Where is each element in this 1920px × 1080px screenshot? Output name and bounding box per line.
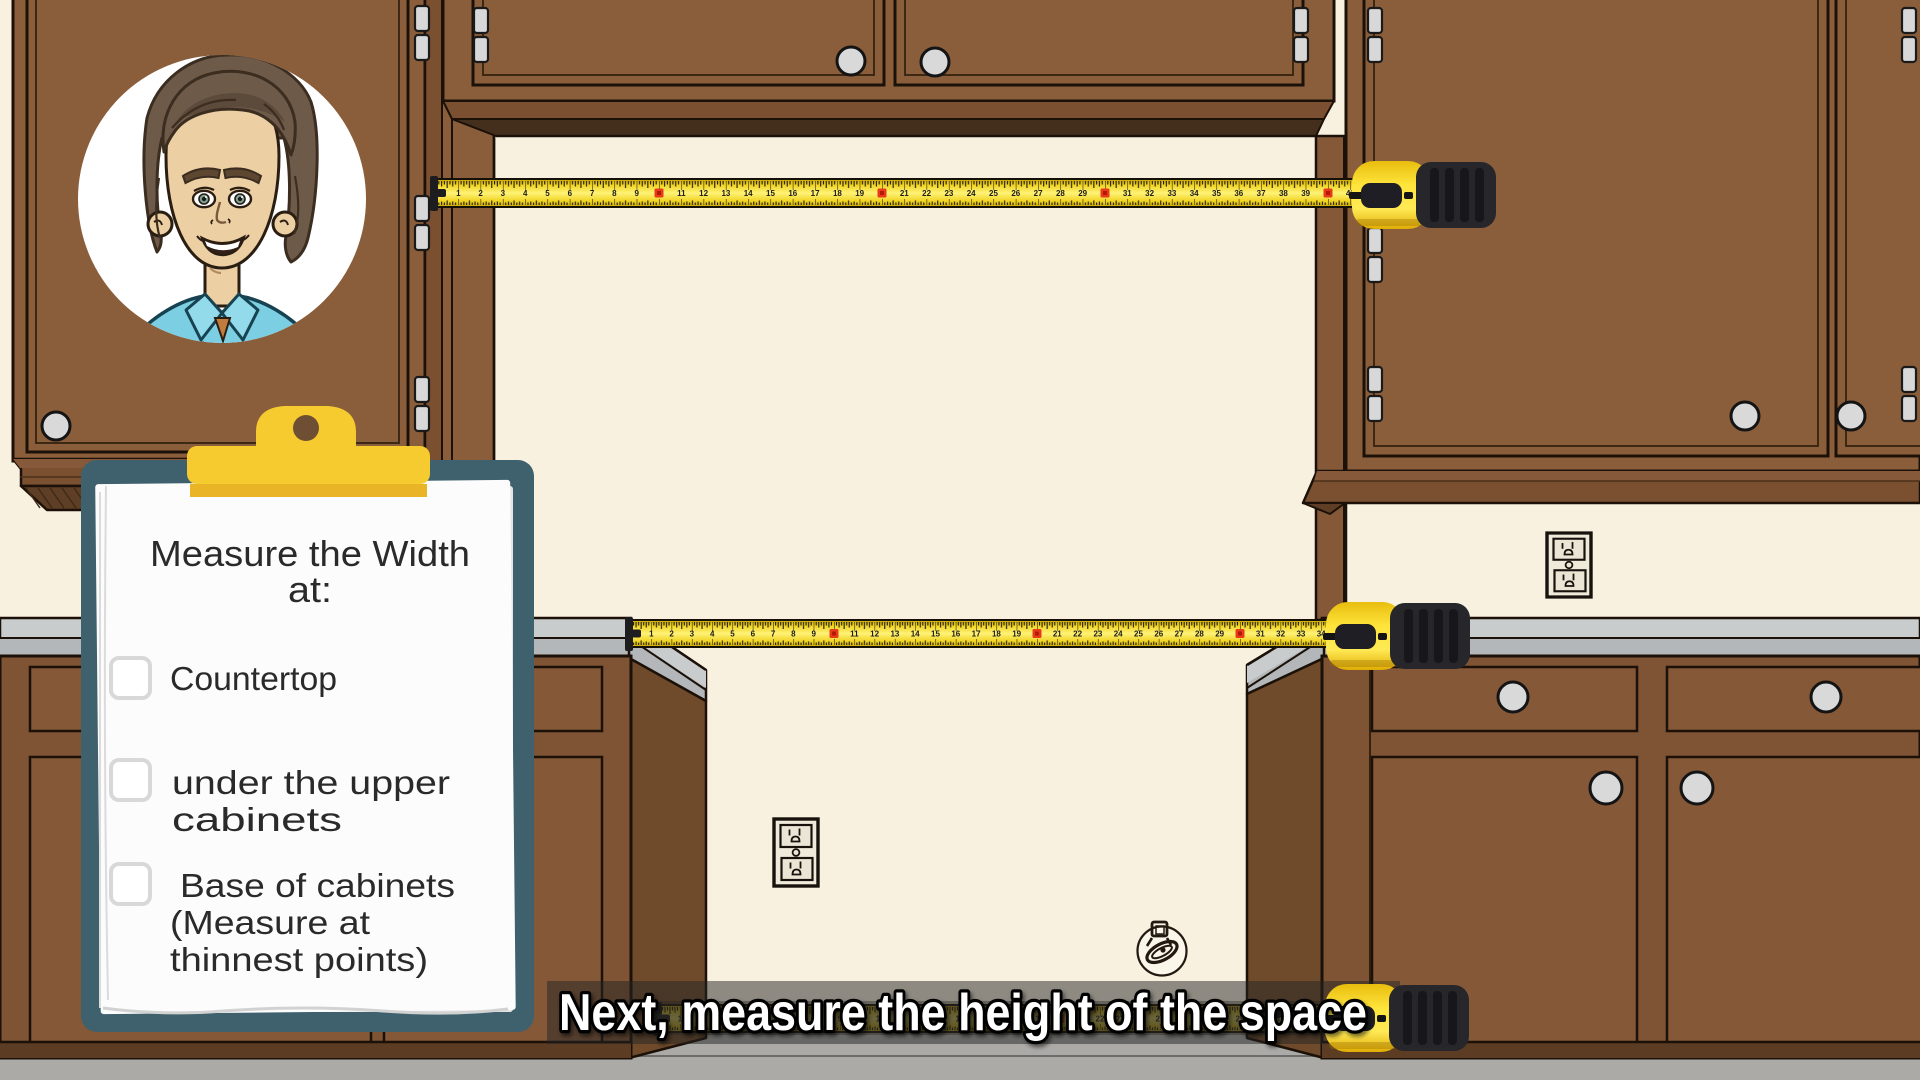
svg-text:23: 23 [944,189,953,198]
svg-text:16: 16 [788,189,797,198]
svg-text:12: 12 [870,630,879,639]
svg-text:3: 3 [690,630,695,639]
svg-text:16: 16 [951,630,960,639]
svg-text:29: 29 [1215,630,1224,639]
svg-text:13: 13 [890,630,899,639]
svg-text:38: 38 [1279,189,1288,198]
svg-text:14: 14 [911,630,920,639]
svg-text:8: 8 [612,189,617,198]
svg-text:under the upper: under the upper [172,764,450,801]
svg-text:19: 19 [1012,630,1021,639]
svg-text:25: 25 [1134,630,1143,639]
svg-text:5: 5 [730,630,735,639]
svg-text:36: 36 [1234,189,1243,198]
svg-text:26: 26 [1154,630,1163,639]
svg-text:Next, measure the height of th: Next, measure the height of the space [559,984,1367,1042]
svg-text:22: 22 [1073,630,1082,639]
svg-text:1: 1 [456,189,461,198]
svg-text:cabinets: cabinets [172,801,342,838]
svg-text:17: 17 [811,189,820,198]
svg-text:32: 32 [1276,630,1285,639]
svg-text:15: 15 [766,189,775,198]
svg-text:37: 37 [1257,189,1266,198]
svg-text:Base of cabinets: Base of cabinets [180,867,455,904]
svg-text:21: 21 [1053,630,1062,639]
svg-text:23: 23 [1093,630,1102,639]
svg-text:14: 14 [744,189,753,198]
svg-text:17: 17 [972,630,981,639]
svg-text:4: 4 [710,630,715,639]
svg-text:6: 6 [751,630,756,639]
svg-text:33: 33 [1167,189,1176,198]
svg-text:8: 8 [791,630,796,639]
svg-text:27: 27 [1175,630,1184,639]
svg-text:19: 19 [855,189,864,198]
svg-text:21: 21 [900,189,909,198]
svg-text:18: 18 [992,630,1001,639]
svg-text:28: 28 [1056,189,1065,198]
svg-text:3: 3 [501,189,506,198]
svg-text:5: 5 [545,189,550,198]
svg-text:9: 9 [811,630,816,639]
svg-text:9: 9 [634,189,639,198]
svg-text:26: 26 [1011,189,1020,198]
svg-text:32: 32 [1145,189,1154,198]
svg-text:12: 12 [699,189,708,198]
svg-text:Countertop: Countertop [170,660,337,697]
svg-text:31: 31 [1123,189,1132,198]
svg-text:15: 15 [931,630,940,639]
svg-text:33: 33 [1296,630,1305,639]
svg-text:at:: at: [288,569,332,610]
svg-text:thinnest points): thinnest points) [170,941,428,978]
svg-text:22: 22 [922,189,931,198]
svg-text:11: 11 [677,189,686,198]
svg-text:25: 25 [989,189,998,198]
svg-text:1: 1 [649,630,654,639]
svg-text:34: 34 [1190,189,1199,198]
svg-text:39: 39 [1301,189,1310,198]
svg-text:11: 11 [850,630,859,639]
svg-text:Measure the Width: Measure the Width [150,533,470,574]
svg-text:24: 24 [1114,630,1123,639]
svg-text:28: 28 [1195,630,1204,639]
svg-text:29: 29 [1078,189,1087,198]
svg-text:(Measure at: (Measure at [170,904,370,941]
svg-text:7: 7 [590,189,595,198]
svg-text:4: 4 [523,189,528,198]
svg-text:2: 2 [478,189,483,198]
svg-text:27: 27 [1034,189,1043,198]
svg-text:24: 24 [967,189,976,198]
svg-text:31: 31 [1256,630,1265,639]
svg-text:2: 2 [669,630,674,639]
svg-text:7: 7 [771,630,776,639]
svg-text:6: 6 [568,189,573,198]
svg-text:35: 35 [1212,189,1221,198]
svg-text:13: 13 [721,189,730,198]
svg-text:18: 18 [833,189,842,198]
